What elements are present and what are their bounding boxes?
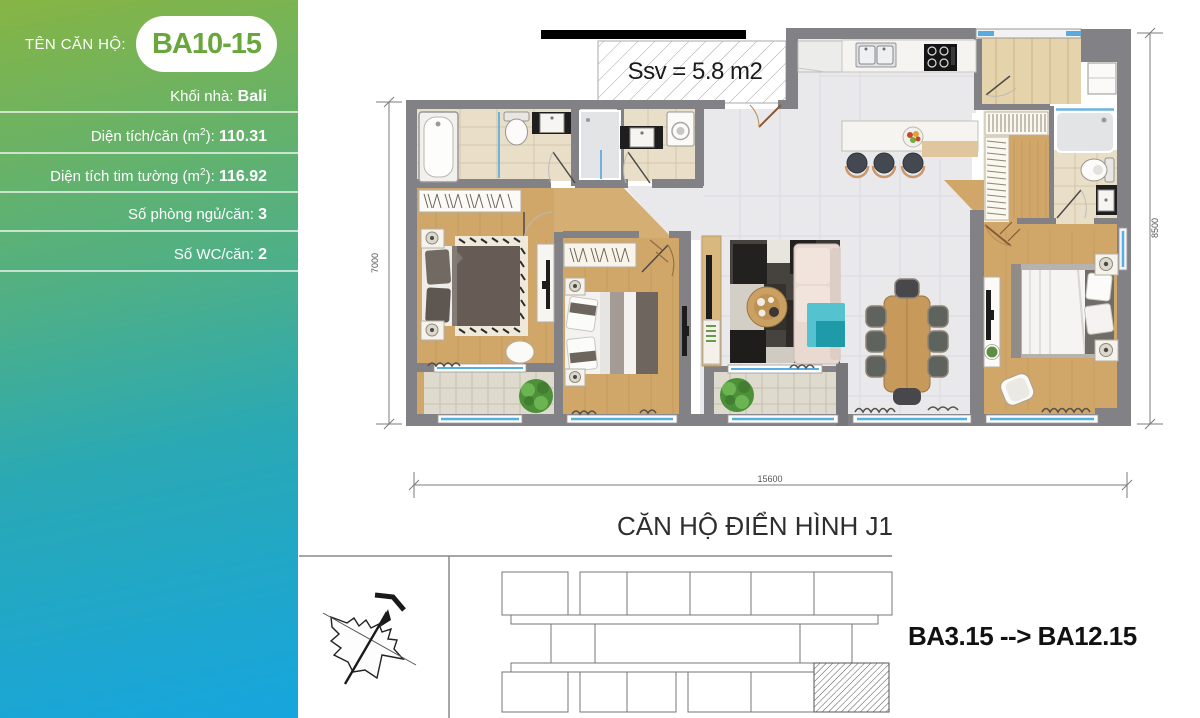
svg-text:CĂN HỘ ĐIỂN HÌNH J1: CĂN HỘ ĐIỂN HÌNH J1	[617, 511, 893, 541]
svg-text:8500: 8500	[1150, 218, 1160, 238]
svg-text:7000: 7000	[370, 253, 380, 273]
svg-text:Ssv = 5.8 m2: Ssv = 5.8 m2	[628, 58, 763, 85]
svg-text:BA3.15 --> BA12.15: BA3.15 --> BA12.15	[908, 621, 1137, 651]
svg-text:15600: 15600	[757, 474, 782, 484]
